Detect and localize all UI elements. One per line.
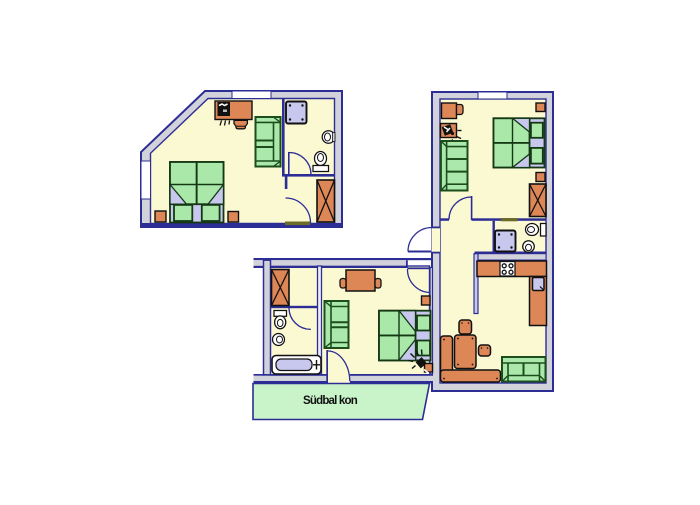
svg-text:Südbal kon: Südbal kon: [303, 395, 358, 407]
